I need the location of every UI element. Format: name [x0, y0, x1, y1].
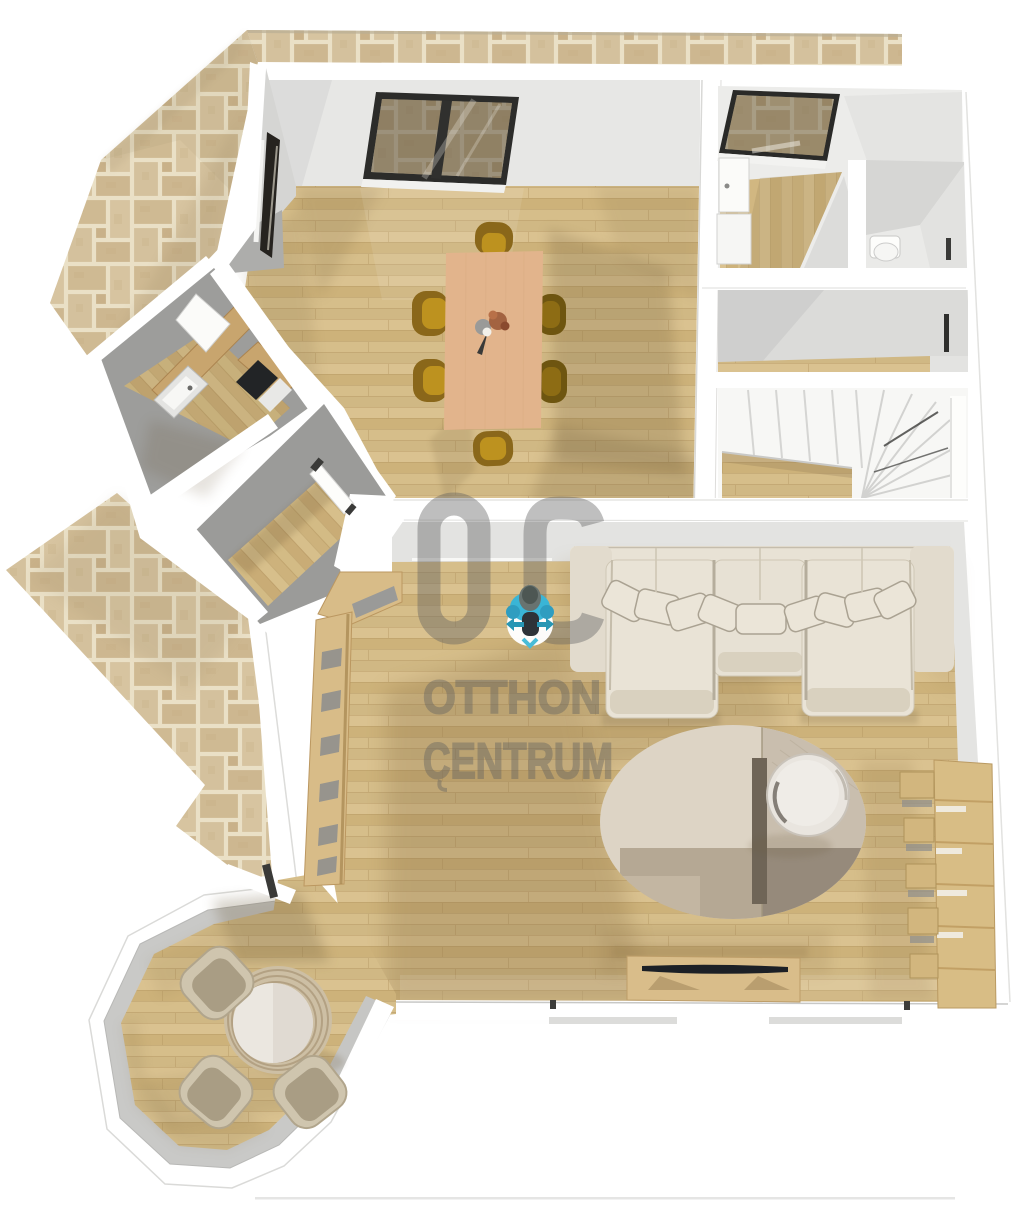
svg-text:CENTRUM: CENTRUM: [423, 733, 613, 789]
svg-text:OTTHON: OTTHON: [423, 671, 601, 723]
